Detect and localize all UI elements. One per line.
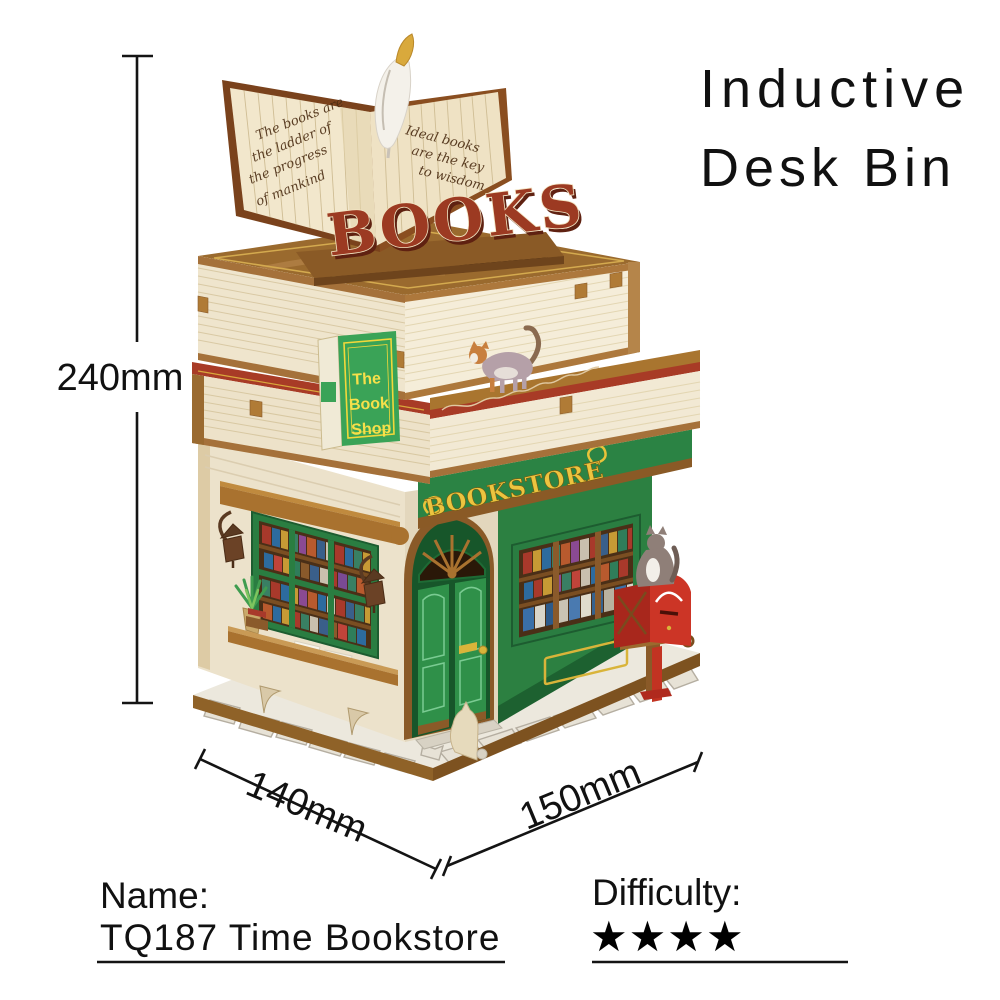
difficulty-stars: ★★★★ xyxy=(590,912,745,961)
book-shop-sign: The Book Shop xyxy=(318,331,400,450)
product-illustration-page: BOOKSTORE xyxy=(0,0,1000,1000)
width-dimension-label: 150mm xyxy=(514,751,647,838)
page-title: Inductive Desk Bin xyxy=(700,59,970,198)
name-value: TQ187 Time Bookstore xyxy=(100,917,500,958)
difficulty-label: Difficulty: xyxy=(592,872,741,913)
hanging-sign-line1: The xyxy=(352,370,381,388)
door xyxy=(404,512,502,749)
stone xyxy=(477,749,487,759)
product-illustration: BOOKSTORE xyxy=(0,0,1000,1000)
hanging-sign-line2: Book xyxy=(349,395,390,414)
product-info: Name: TQ187 Time Bookstore Difficulty: ★… xyxy=(97,872,848,962)
name-label: Name: xyxy=(100,875,209,916)
title-line1: Inductive xyxy=(700,59,970,119)
door-knob xyxy=(479,646,487,654)
mail-slot xyxy=(660,612,678,614)
depth-dimension-label: 140mm xyxy=(240,763,373,851)
hanging-sign-line3: Shop xyxy=(351,420,392,439)
height-dimension-label: 240mm xyxy=(57,357,184,399)
title-line2: Desk Bin xyxy=(700,138,956,198)
